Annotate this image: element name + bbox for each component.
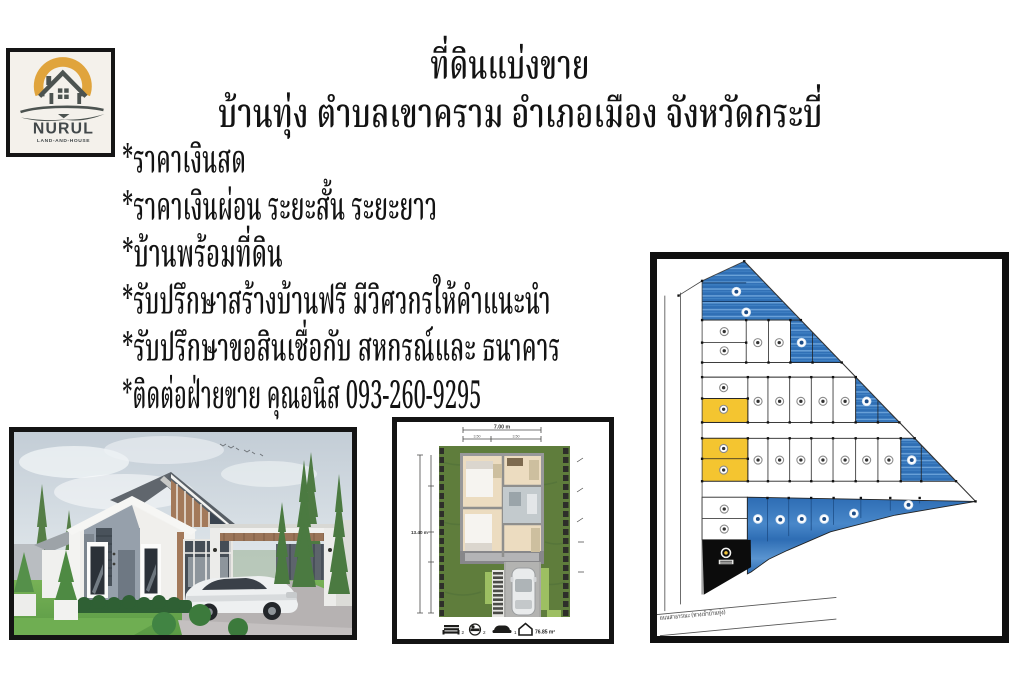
svg-text:3.50: 3.50 bbox=[513, 435, 520, 439]
svg-text:2: 2 bbox=[483, 630, 486, 635]
svg-text:13.40 m: 13.40 m bbox=[411, 530, 428, 535]
svg-text:76.85 m²: 76.85 m² bbox=[535, 630, 555, 636]
svg-text:2: 2 bbox=[462, 630, 465, 635]
svg-text:3.50: 3.50 bbox=[474, 435, 481, 439]
svg-text:7.00 m: 7.00 m bbox=[494, 425, 511, 431]
svg-text:1: 1 bbox=[514, 630, 517, 635]
